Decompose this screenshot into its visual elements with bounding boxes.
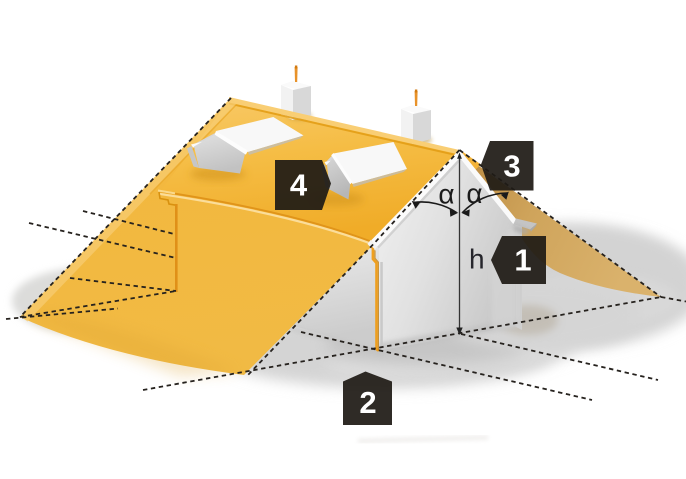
svg-text:1: 1 [514, 243, 531, 278]
svg-text:3: 3 [503, 149, 520, 184]
svg-text:h: h [469, 244, 485, 275]
svg-text:α: α [438, 179, 454, 210]
svg-text:2: 2 [359, 385, 376, 420]
svg-text:α: α [466, 178, 482, 209]
svg-text:4: 4 [290, 168, 308, 203]
